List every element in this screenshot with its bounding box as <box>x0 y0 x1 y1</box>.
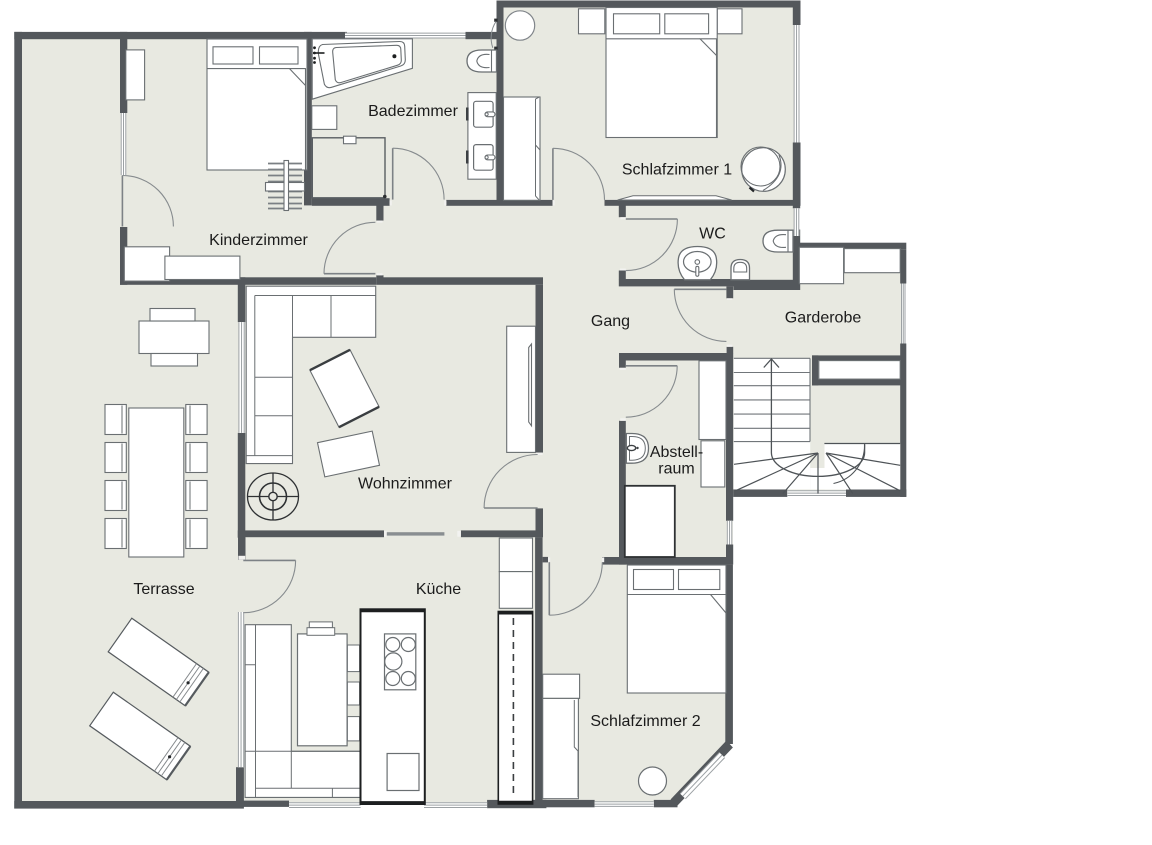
svg-text:Schlafzimmer 2: Schlafzimmer 2 <box>590 713 700 730</box>
svg-text:Küche: Küche <box>416 581 461 598</box>
svg-text:Kinderzimmer: Kinderzimmer <box>209 232 308 249</box>
svg-text:Abstell-: Abstell- <box>650 444 703 461</box>
svg-text:Terrasse: Terrasse <box>133 581 194 598</box>
svg-text:WC: WC <box>699 225 726 242</box>
svg-text:Schlafzimmer 1: Schlafzimmer 1 <box>622 162 732 179</box>
svg-text:Wohnzimmer: Wohnzimmer <box>358 475 453 492</box>
svg-text:Gang: Gang <box>591 313 630 330</box>
svg-text:Garderobe: Garderobe <box>785 309 862 326</box>
svg-text:Badezimmer: Badezimmer <box>368 103 458 120</box>
svg-text:raum: raum <box>658 461 694 478</box>
